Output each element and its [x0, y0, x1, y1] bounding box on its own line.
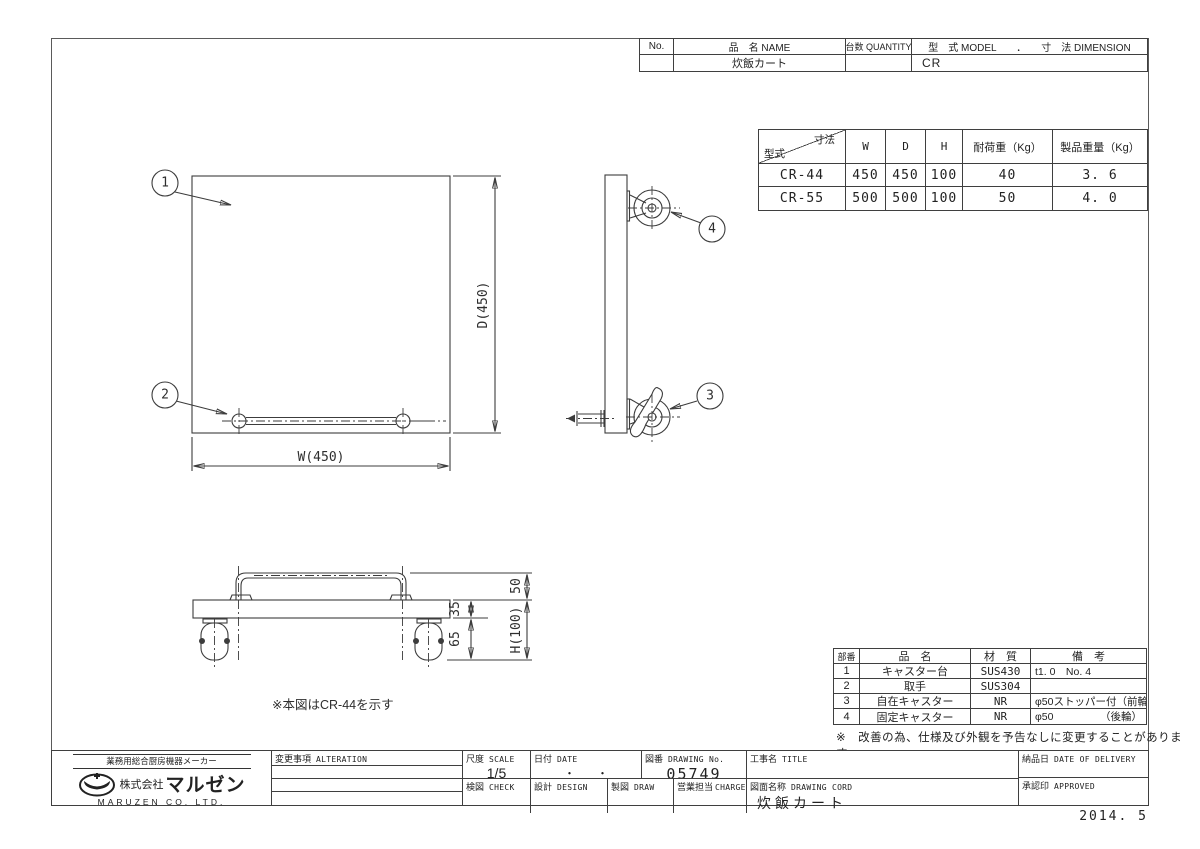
drawing-name-label-en: DRAWING CORD	[791, 783, 852, 792]
spec-cell: 450	[846, 164, 886, 187]
part-name: 自在キャスター	[860, 694, 971, 709]
dimension-heights: 50 H(100) 35 65	[410, 573, 532, 660]
dim-caster-height: 65	[448, 631, 463, 647]
dim-width-label: W(450)	[298, 450, 345, 465]
drawing-no-label-jp: 図番	[645, 752, 663, 765]
company-prefix: 株式会社	[119, 776, 163, 792]
company-section: 業務用総合厨房機器メーカー 株式会社 マルゼン MARUZEN CO. LTD.	[52, 751, 272, 805]
alteration-row	[272, 779, 462, 792]
title-block-right: 納品日DATE OF DELIVERY 承認印APPROVED	[1018, 751, 1148, 805]
spec-cell: 4. 0	[1053, 187, 1147, 210]
header-model-label: 型 式 MODEL ． 寸 法 DIMENSION	[912, 39, 1147, 55]
parts-col-no: 部番	[834, 649, 860, 664]
dim-total-height: H(100)	[509, 607, 524, 654]
part-no: 2	[834, 679, 860, 694]
design-label-en: DESIGN	[557, 783, 588, 792]
balloon-2: 2	[152, 382, 227, 414]
model-note: ※本図はCR-44を示す	[272, 698, 394, 712]
model-value: CR	[912, 55, 1147, 71]
drawing-no-label-en: DRAWING No.	[668, 755, 724, 764]
date-label-jp: 日付	[534, 752, 552, 765]
parts-col-material: 材 質	[971, 649, 1031, 664]
parts-table: 部番 品 名 材 質 備 考 1 キャスター台 SUS430 t1. 0 No.…	[833, 648, 1147, 725]
charge-label-jp: 営業担当	[677, 780, 713, 793]
delivery-cell: 納品日DATE OF DELIVERY	[1019, 751, 1148, 778]
part-no: 3	[834, 694, 860, 709]
balloon-3-number: 3	[706, 389, 714, 404]
charge-label-en: CHARGE	[715, 783, 746, 792]
spec-row-model: CR-44	[759, 164, 846, 187]
front-caster-right	[413, 619, 444, 668]
scale-label-en: SCALE	[489, 755, 515, 764]
handle-side-view	[566, 410, 616, 427]
alteration-row	[272, 766, 462, 779]
dimension-width: W(450)	[192, 437, 450, 471]
approved-label-en: APPROVED	[1054, 782, 1095, 791]
header-name-label: 品 名 NAME	[674, 39, 846, 55]
dimension-depth: D(450)	[453, 176, 501, 433]
part-remark: φ50ストッパー付（前輪）	[1035, 694, 1146, 709]
spec-cell: 500	[886, 187, 926, 210]
design-label-jp: 設計	[534, 780, 552, 793]
delivery-label-jp: 納品日	[1022, 752, 1049, 765]
balloon-2-number: 2	[161, 388, 169, 403]
drawing-sheet: 1 2 D(450) W(450)	[0, 0, 1200, 849]
handle-front-inner	[241, 578, 401, 600]
check-label-en: CHECK	[489, 783, 515, 792]
part-no: 1	[834, 664, 860, 679]
scale-value: 1/5	[463, 765, 530, 778]
header-qty-label: 台数 QUANTITY	[846, 39, 912, 55]
dim-plate-thickness: 35	[448, 601, 463, 617]
part-name: キャスター台	[860, 664, 971, 679]
balloon-1-number: 1	[161, 176, 169, 191]
date-label-en: DATE	[557, 755, 577, 764]
company-tagline: 業務用総合厨房機器メーカー	[73, 754, 251, 769]
title-label-en: TITLE	[782, 755, 808, 764]
handle-front-outer	[236, 573, 406, 600]
maruzen-logo-icon	[77, 771, 117, 797]
spec-cell: 100	[926, 187, 963, 210]
drawing-no-value: 05749	[642, 765, 746, 778]
draw-label-jp: 製図	[611, 780, 629, 793]
charge-cell: 営業担当CHARGE	[674, 779, 747, 813]
part-material: SUS304	[971, 679, 1031, 694]
part-remark: φ50	[1035, 711, 1054, 723]
drawing-name-cell: 図面名称DRAWING CORD 炊飯カート	[747, 779, 1018, 813]
issue-date: 2014. 5	[1079, 809, 1148, 824]
spec-cell: 100	[926, 164, 963, 187]
spec-cell: 3. 6	[1053, 164, 1147, 187]
part-material: NR	[971, 694, 1031, 709]
approved-cell: 承認印APPROVED	[1019, 778, 1148, 805]
company-name-en: MARUZEN CO. LTD.	[98, 797, 226, 807]
product-name-value: 炊飯カート	[674, 55, 846, 71]
drawing-no-cell: 図番DRAWING No. 05749	[642, 751, 747, 778]
spec-col-h: H	[926, 130, 963, 164]
header-no-label: No.	[640, 39, 674, 55]
balloon-3: 3	[670, 383, 723, 409]
part-name: 固定キャスター	[860, 709, 971, 724]
title-cell: 工事名TITLE	[747, 751, 1018, 778]
design-cell: 設計DESIGN	[531, 779, 608, 813]
spec-cell: 500	[846, 187, 886, 210]
alteration-label-jp: 変更事項	[275, 752, 311, 765]
spec-col-w: W	[846, 130, 886, 164]
part-remark: t1. 0 No. 4	[1035, 664, 1091, 679]
scale-label-jp: 尺度	[466, 752, 484, 765]
parts-col-name: 品 名	[860, 649, 971, 664]
scale-cell: 尺度SCALE 1/5	[463, 751, 531, 778]
front-view: 50 H(100) 35 65 ※本図はCR-44を示す	[193, 566, 532, 712]
front-caster-left	[199, 619, 230, 668]
part-no: 4	[834, 709, 860, 724]
title-block-center: 尺度SCALE 1/5 日付DATE ・ ・ 図番DRAWING No. 057…	[463, 751, 1018, 805]
date-cell: 日付DATE ・ ・	[531, 751, 642, 778]
spec-col-d: D	[886, 130, 926, 164]
top-view: 1 2 D(450) W(450)	[152, 170, 501, 471]
delivery-label-en: DATE OF DELIVERY	[1054, 755, 1136, 764]
spec-row-model: CR-55	[759, 187, 846, 210]
spec-cell: 40	[963, 164, 1053, 187]
spec-table: 寸法 型式 W D H 耐荷重（Kg） 製品重量（Kg） CR-44 450 4…	[758, 129, 1148, 211]
check-cell: 検図CHECK	[463, 779, 531, 813]
part-remark-right: （後輪）	[1100, 709, 1142, 724]
approved-label-jp: 承認印	[1022, 779, 1049, 792]
title-block: 業務用総合厨房機器メーカー 株式会社 マルゼン MARUZEN CO. LTD.…	[51, 750, 1149, 806]
caster-stopper-lever	[630, 388, 662, 437]
cart-front-outline	[193, 600, 450, 618]
alteration-section: 変更事項 ALTERATION	[272, 751, 463, 805]
part-name: 取手	[860, 679, 971, 694]
drawing-name-value: 炊飯カート	[747, 793, 1018, 813]
spec-col-weight: 製品重量（Kg）	[1053, 130, 1147, 164]
draw-cell: 製図DRAW	[608, 779, 674, 813]
header-table: No. 品 名 NAME 台数 QUANTITY 型 式 MODEL ． 寸 法…	[639, 38, 1148, 72]
alteration-header: 変更事項 ALTERATION	[272, 751, 462, 766]
cart-top-outline	[192, 176, 450, 433]
spec-diagonal-header: 寸法 型式	[759, 130, 846, 164]
cart-side-outline	[605, 175, 627, 433]
side-view: 4 3	[566, 175, 725, 442]
dim-depth-label: D(450)	[476, 282, 491, 329]
parts-col-remark: 備 考	[1031, 649, 1146, 664]
spec-cell: 450	[886, 164, 926, 187]
spec-col-load: 耐荷重（Kg）	[963, 130, 1053, 164]
balloon-4: 4	[671, 212, 725, 242]
company-name: マルゼン	[165, 770, 245, 797]
spec-dimension-label: 寸法	[814, 132, 835, 147]
title-label-jp: 工事名	[750, 752, 777, 765]
alteration-label-en: ALTERATION	[316, 755, 367, 764]
part-material: NR	[971, 709, 1031, 724]
date-value: ・ ・	[531, 765, 641, 778]
spec-model-label: 型式	[764, 146, 785, 161]
drawing-name-label-jp: 図面名称	[750, 780, 786, 793]
check-label-jp: 検図	[466, 780, 484, 793]
spec-cell: 50	[963, 187, 1053, 210]
dim-handle-height: 50	[509, 578, 524, 594]
alteration-row	[272, 792, 462, 805]
balloon-4-number: 4	[708, 222, 716, 237]
draw-label-en: DRAW	[634, 783, 654, 792]
part-material: SUS430	[971, 664, 1031, 679]
